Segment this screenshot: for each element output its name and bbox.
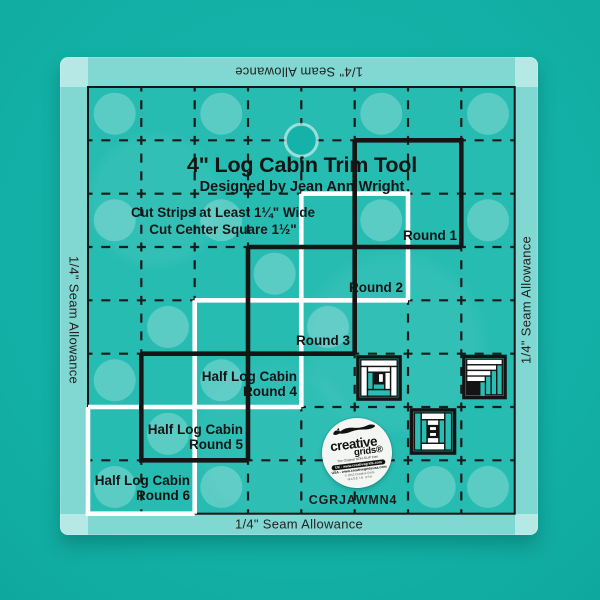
title-block: 4" Log Cabin Trim Tool Designed by Jean …	[150, 154, 454, 195]
instruction-line-1: Cut Strips at Least 1¼" Wide	[92, 204, 354, 221]
product-title: 4" Log Cabin Trim Tool	[150, 154, 454, 177]
seam-allowance-label-top: 1/4" Seam Allowance	[235, 65, 363, 80]
round-1-label: Round 1	[403, 228, 457, 243]
half-log-cabin-round-5-label: Half Log Cabin Round 5	[148, 422, 243, 452]
round-5-text: Round 5	[148, 437, 243, 452]
logo-content: creative grids® The Original NON-SLIP fr…	[318, 414, 396, 492]
round-2-label: Round 2	[349, 280, 403, 295]
log-cabin-trim-ruler: 1/4" Seam Allowance 1/4" Seam Allowance …	[60, 57, 538, 535]
creative-grids-logo: creative grids® The Original NON-SLIP fr…	[318, 414, 396, 492]
round-3-label: Round 3	[296, 333, 350, 348]
half-log-cabin-round-6-label: Half Log Cabin Round 6	[95, 473, 190, 503]
half-log-cabin-text: Half Log Cabin	[95, 473, 190, 488]
log-cabin-block-icon	[355, 355, 403, 401]
seam-allowance-label-right: 1/4" Seam Allowance	[519, 236, 534, 364]
half-log-cabin-text: Half Log Cabin	[202, 369, 297, 384]
designer-credit: Designed by Jean Ann Wright	[150, 179, 454, 195]
seam-allowance-label-left: 1/4" Seam Allowance	[67, 256, 82, 384]
half-log-cabin-text: Half Log Cabin	[148, 422, 243, 437]
product-photo: 1/4" Seam Allowance 1/4" Seam Allowance …	[0, 0, 600, 600]
courthouse-steps-block-icon	[408, 408, 458, 455]
seam-allowance-label-bottom: 1/4" Seam Allowance	[235, 517, 363, 532]
cutting-instructions: Cut Strips at Least 1¼" Wide Cut Center …	[92, 204, 354, 238]
instruction-line-2: Cut Center Square 1½"	[92, 221, 354, 238]
ruler-grid	[60, 57, 538, 535]
round-6-text: Round 6	[95, 488, 190, 503]
half-log-cabin-round-4-label: Half Log Cabin Round 4	[202, 369, 297, 399]
hang-hole	[285, 124, 317, 156]
half-log-cabin-block-icon	[462, 354, 507, 400]
round-4-text: Round 4	[202, 384, 297, 399]
sku-label: CGRJAWMN4	[293, 493, 413, 507]
